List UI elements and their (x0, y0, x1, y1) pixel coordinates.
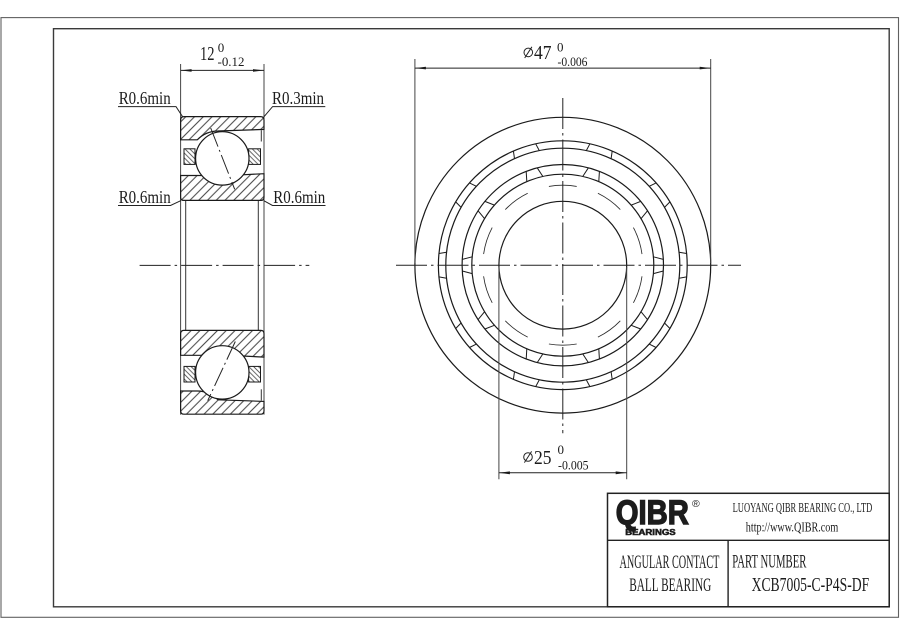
svg-text:QIBR: QIBR (616, 494, 689, 532)
svg-text:0: 0 (558, 442, 565, 457)
svg-text:-0.005: -0.005 (558, 457, 589, 472)
svg-text:0: 0 (218, 40, 225, 55)
svg-text:0: 0 (557, 39, 564, 54)
svg-text:BEARINGS: BEARINGS (625, 528, 676, 537)
svg-text:25: 25 (534, 447, 552, 469)
svg-text:47: 47 (534, 42, 552, 64)
svg-text:PART NUMBER: PART NUMBER (732, 551, 806, 572)
svg-text:R0.6min: R0.6min (273, 187, 325, 207)
svg-text:-0.006: -0.006 (558, 54, 588, 69)
svg-text:R0.3min: R0.3min (272, 88, 324, 108)
svg-text:-0.12: -0.12 (218, 54, 245, 69)
svg-text:BALL BEARING: BALL BEARING (629, 575, 711, 596)
svg-text:R0.6min: R0.6min (119, 88, 171, 108)
svg-text:XCB7005-C-P4S-DF: XCB7005-C-P4S-DF (752, 574, 870, 596)
svg-text:LUOYANG QIBR BEARING CO., LTD: LUOYANG QIBR BEARING CO., LTD (733, 501, 873, 516)
svg-text:ANGULAR CONTACT: ANGULAR CONTACT (620, 552, 720, 573)
svg-text:®: ® (692, 498, 700, 510)
svg-text:http://www.QIBR.com: http://www.QIBR.com (746, 521, 839, 536)
svg-text:R0.6min: R0.6min (119, 187, 171, 207)
svg-text:12: 12 (200, 43, 215, 65)
